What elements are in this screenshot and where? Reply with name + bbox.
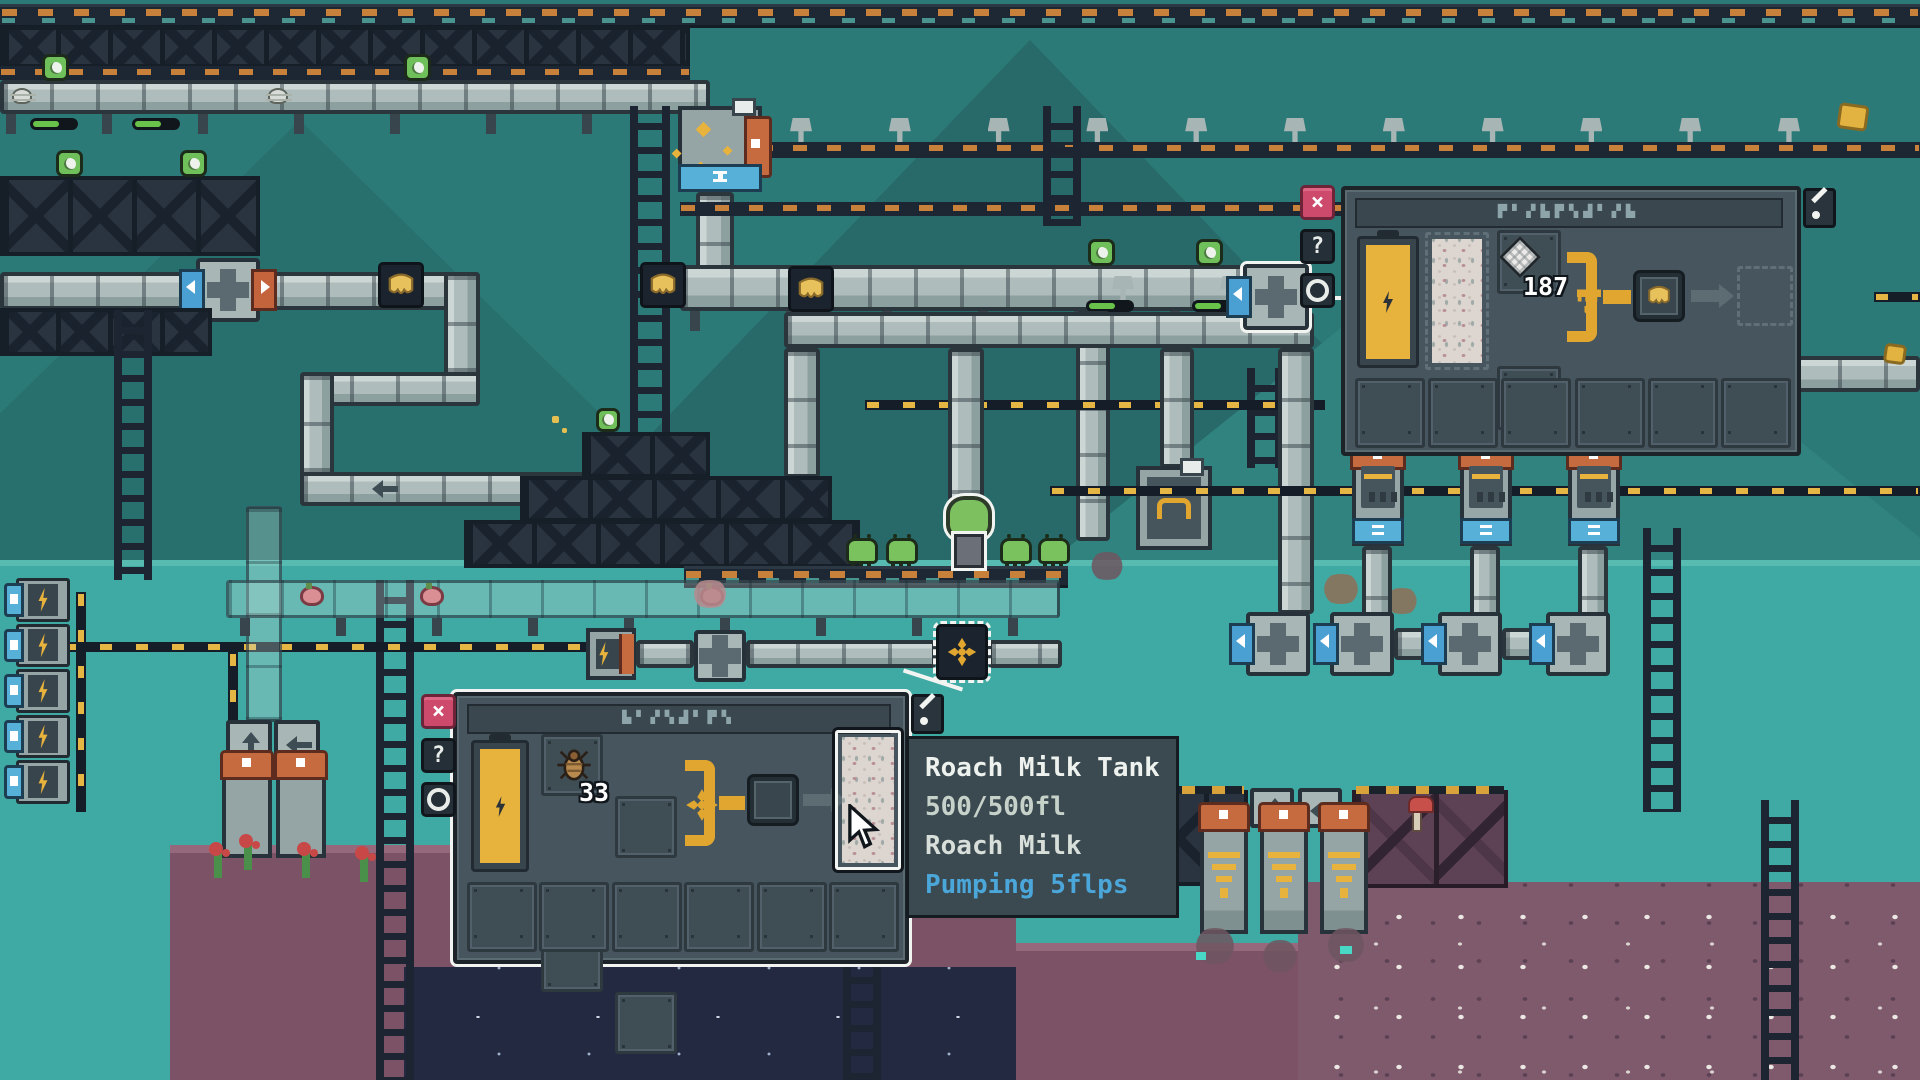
roach-creature[interactable]	[1038, 538, 1070, 564]
press-face	[1361, 466, 1395, 508]
drill-machine[interactable]	[1320, 818, 1368, 934]
bolt-icon	[493, 794, 508, 819]
inventory-slot[interactable]	[1355, 378, 1425, 448]
help-button[interactable]: ?	[421, 738, 456, 773]
product-slot	[1640, 277, 1678, 315]
machine-cap-orange	[220, 750, 274, 780]
claw-machine[interactable]	[1136, 466, 1212, 550]
duct-pipe	[0, 80, 710, 114]
conveyor-belt	[680, 202, 1342, 216]
inventory-slot[interactable]	[1501, 378, 1571, 448]
machine-panel-bottom[interactable]: ▙▘▞▚▟▘▛▚ 33	[453, 692, 909, 964]
pedestal-item	[889, 118, 911, 142]
crates-row	[0, 308, 212, 356]
tooltip-contents: Roach Milk	[925, 827, 1160, 866]
pipe-junction[interactable]	[1330, 612, 1394, 676]
pipe	[1578, 546, 1608, 616]
press-output-band	[1460, 518, 1512, 544]
panel-title-glyphs: ▙▘▞▚▟▘▛▚	[467, 704, 891, 734]
pipe-junction[interactable]	[1438, 612, 1502, 676]
drill-machine[interactable]	[1260, 818, 1308, 934]
ladder[interactable]	[1761, 800, 1799, 1080]
pipe-junction[interactable]	[694, 630, 746, 682]
input-flag-blue	[1229, 623, 1255, 665]
info-button[interactable]	[1300, 273, 1335, 308]
pedestal-item	[790, 118, 812, 142]
splat-icon	[945, 635, 979, 669]
berry-item	[420, 586, 444, 606]
pipe	[1278, 348, 1314, 614]
sparkle-ore-field	[1298, 882, 1920, 1080]
press-machine[interactable]	[1568, 456, 1620, 546]
cheese-item-icon	[1645, 282, 1673, 310]
recipe-connector	[1603, 290, 1631, 304]
progress-bar	[30, 118, 78, 130]
crates-pile	[464, 520, 860, 568]
output-arrow	[1691, 290, 1719, 302]
battery-cell	[16, 578, 70, 622]
red-flower-plant	[360, 856, 368, 882]
power-cable	[76, 592, 86, 812]
tank-slot[interactable]	[1425, 232, 1489, 370]
cave-dark-area	[404, 967, 1016, 1080]
ladder[interactable]	[114, 310, 152, 580]
info-button[interactable]	[421, 782, 456, 817]
glass-pipe	[226, 580, 1060, 618]
hover-tooltip: Roach Milk Tank 500/500fl Roach Milk Pum…	[906, 736, 1179, 918]
gold-nugget	[1836, 102, 1869, 132]
input-flag-blue	[1313, 623, 1339, 665]
inventory-slot[interactable]	[829, 882, 899, 952]
pedestal-item	[1383, 118, 1405, 142]
purple-ground	[1016, 943, 1298, 1080]
input-slot[interactable]	[615, 796, 677, 858]
inventory-row	[1355, 378, 1791, 442]
battery-cell	[16, 760, 70, 804]
web-item	[12, 88, 32, 104]
drill-dust	[1322, 928, 1370, 962]
machine-cap-orange	[274, 750, 328, 780]
roach-creature[interactable]	[886, 538, 918, 564]
pedestal-item	[1580, 118, 1602, 142]
pedestal-item	[1679, 118, 1701, 142]
tooltip-title: Roach Milk Tank	[925, 749, 1160, 788]
battery-slot[interactable]	[1357, 236, 1419, 368]
inventory-slot[interactable]	[612, 882, 682, 952]
generator-box[interactable]	[586, 628, 636, 680]
power-cable	[228, 652, 238, 722]
berry-item	[300, 586, 324, 606]
battery-cell	[16, 669, 70, 713]
spark-particle	[552, 416, 559, 423]
ladder[interactable]	[1043, 106, 1081, 226]
progress-bar	[132, 118, 180, 130]
input-slot[interactable]	[615, 992, 677, 1054]
smoke-puff	[1318, 574, 1364, 604]
crates-pile	[520, 476, 832, 522]
timer-creature[interactable]	[1088, 239, 1115, 266]
timer-creature[interactable]	[596, 408, 620, 432]
crystal-chip	[1196, 952, 1206, 960]
machine-product-box	[1633, 270, 1685, 322]
flow-arrow-left	[372, 480, 398, 498]
duct-hangers	[6, 114, 706, 134]
output-flag-orange	[251, 269, 277, 311]
pedestal-items-row	[790, 118, 1800, 142]
pipe	[784, 348, 820, 478]
pipe	[988, 640, 1062, 668]
machine-cap-orange	[1198, 802, 1250, 832]
pump-machine-selected[interactable]	[936, 624, 988, 680]
dust-puff	[1086, 552, 1128, 580]
pipe	[746, 640, 936, 668]
input-flag-blue	[1226, 276, 1252, 318]
conveyor-belt	[0, 66, 690, 80]
inventory-slot[interactable]	[1721, 378, 1791, 448]
battery-cell	[16, 715, 70, 759]
machine-cap	[1180, 458, 1204, 476]
machine-panel-right[interactable]: ▛▘▞▙▛▚▟▘▞▙ 187	[1341, 186, 1801, 456]
pedestal-item	[988, 118, 1010, 142]
web-item	[268, 88, 288, 104]
cheese-item-icon	[647, 269, 679, 301]
bolt-icon	[1380, 289, 1396, 315]
pipe-junction[interactable]	[1546, 612, 1610, 676]
drill-dust	[1258, 940, 1302, 972]
pin-tool-button[interactable]	[1803, 188, 1836, 228]
press-machine[interactable]	[1460, 456, 1512, 546]
ladder[interactable]	[843, 960, 881, 1080]
close-button[interactable]: ×	[1300, 185, 1335, 220]
inventory-slot[interactable]	[1575, 378, 1645, 448]
milk-fill	[1432, 239, 1482, 363]
timer-creature[interactable]	[1196, 239, 1223, 266]
conveyor-belt-top	[0, 4, 1920, 28]
input-flag-blue	[1529, 623, 1555, 665]
inventory-slot[interactable]	[467, 882, 537, 952]
mouse-cursor	[846, 804, 880, 850]
output-arrow	[803, 794, 831, 806]
input-flag-blue	[1421, 623, 1447, 665]
tooltip-status: Pumping 5flps	[925, 866, 1160, 905]
item-display-slot[interactable]	[378, 262, 424, 308]
game-viewport: ▛▘▞▙▛▚▟▘▞▙ 187 × ? ▙▘▞▚▟▘▛▚ 33	[0, 0, 1920, 1080]
input-flag-blue	[179, 269, 205, 311]
pipe-junction[interactable]	[1246, 612, 1310, 676]
press-face	[1469, 466, 1503, 508]
mushroom	[1412, 806, 1422, 832]
machine-cap-orange	[1258, 802, 1310, 832]
girder-crates-row	[0, 26, 690, 68]
pipe	[636, 640, 694, 668]
close-button[interactable]: ×	[421, 694, 456, 729]
press-machine-icon	[1571, 282, 1607, 318]
machine-output-band	[678, 164, 762, 192]
pedestal-item	[1185, 118, 1207, 142]
battery-stack[interactable]	[16, 578, 70, 804]
inventory-slot[interactable]	[1428, 378, 1498, 448]
machine-product-box	[747, 774, 799, 826]
battery-charge	[1366, 245, 1410, 359]
claw-icon	[1157, 498, 1191, 519]
battery-slot[interactable]	[471, 740, 529, 872]
press-machine[interactable]	[1352, 456, 1404, 546]
crates-row	[0, 176, 260, 256]
drill-machine[interactable]	[1200, 818, 1248, 934]
cheese-item-icon	[795, 273, 827, 305]
inventory-row	[467, 882, 899, 946]
pin-tool-button[interactable]	[911, 694, 944, 734]
timer-creature[interactable]	[42, 54, 69, 81]
item-display-slot[interactable]	[788, 266, 834, 312]
power-cable	[865, 400, 1325, 410]
item-count: 187	[1523, 272, 1568, 301]
output-slot-empty[interactable]	[1737, 266, 1793, 326]
ladder[interactable]	[1643, 528, 1681, 812]
red-flower-plant	[214, 852, 222, 878]
pedestal-item	[1778, 118, 1800, 142]
inventory-slot[interactable]	[539, 882, 609, 952]
red-flower-plant	[302, 852, 310, 878]
duct-hangers	[240, 618, 1046, 636]
press-output-band	[1352, 518, 1404, 544]
pedestal-item	[1482, 118, 1504, 142]
inventory-slot[interactable]	[684, 882, 754, 952]
player-character[interactable]	[942, 496, 992, 568]
machine-cap-orange	[1318, 802, 1370, 832]
gold-nugget	[1883, 343, 1908, 366]
crystal-chip	[1340, 946, 1352, 954]
panel-title-glyphs: ▛▘▞▙▛▚▟▘▞▙	[1355, 198, 1783, 228]
recipe-connector	[719, 796, 745, 810]
item-count: 33	[579, 778, 609, 807]
collector-machine[interactable]	[678, 106, 762, 184]
splat-machine-icon	[683, 786, 721, 824]
item-display-slot[interactable]	[640, 262, 686, 308]
cheese-item-icon	[385, 269, 417, 301]
press-output-band	[1568, 518, 1620, 544]
pedestal-item	[1284, 118, 1306, 142]
power-cable	[1874, 292, 1920, 302]
roach-creature[interactable]	[846, 538, 878, 564]
timer-creature[interactable]	[404, 54, 431, 81]
pedestal-item	[1086, 118, 1108, 142]
pipe	[948, 348, 984, 508]
timer-creature[interactable]	[56, 150, 83, 177]
pipe	[1362, 546, 1392, 616]
help-button[interactable]: ?	[1300, 229, 1335, 264]
spark-particle	[562, 428, 567, 433]
press-face	[1577, 466, 1611, 508]
ladder[interactable]	[376, 580, 414, 1080]
red-flower-plant	[244, 844, 252, 870]
inventory-slot[interactable]	[1648, 378, 1718, 448]
pipe	[1160, 348, 1194, 468]
pink-puff	[688, 580, 732, 608]
roach-creature[interactable]	[1000, 538, 1032, 564]
battery-cell	[16, 624, 70, 668]
machine-cap	[732, 98, 756, 116]
conveyor-belt	[690, 142, 1920, 158]
timer-creature[interactable]	[180, 150, 207, 177]
milk-product	[754, 781, 792, 819]
battery-charge	[480, 749, 520, 863]
crates-pile	[582, 432, 710, 478]
inventory-slot[interactable]	[757, 882, 827, 952]
tooltip-capacity: 500/500fl	[925, 788, 1160, 827]
pipe	[1470, 546, 1500, 616]
